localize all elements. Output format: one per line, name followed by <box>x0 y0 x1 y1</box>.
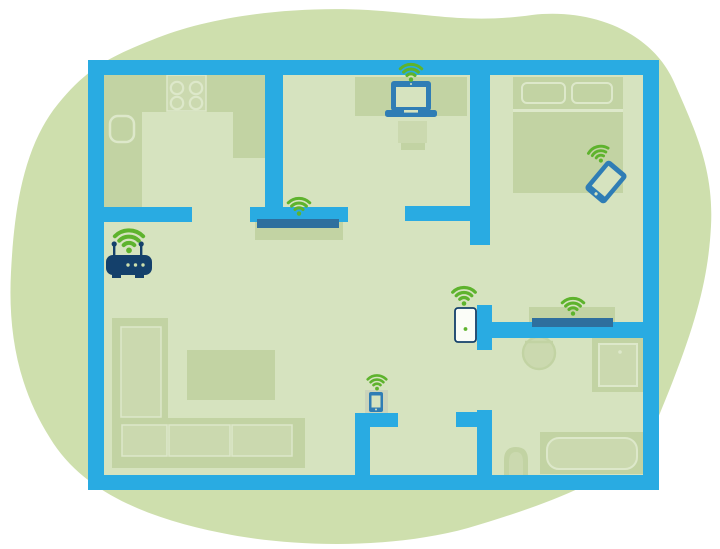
sofa-cushion <box>121 327 161 417</box>
outer-wall-bottom <box>88 475 659 490</box>
wall-office-bedroom <box>470 75 490 245</box>
router-led <box>141 263 144 266</box>
router-antenna-tip <box>112 241 117 246</box>
wall-kitchen-office <box>265 75 283 222</box>
shower-tray <box>599 344 637 386</box>
bathtub-basin <box>547 438 637 469</box>
wall-office-living-right <box>405 206 478 221</box>
smartphone <box>369 392 383 412</box>
floorplan-canvas <box>0 0 720 549</box>
shower-drain <box>618 350 622 354</box>
toilet-seat <box>509 452 523 475</box>
powerline-extender-right <box>532 318 613 327</box>
router-foot <box>112 274 121 278</box>
wall-hallway-stub <box>370 413 398 427</box>
outer-wall-left <box>88 60 104 490</box>
wall-bathroom-door-stub <box>456 412 477 427</box>
repeater-body <box>455 308 476 342</box>
router-led <box>134 263 137 266</box>
laptop-base-notch <box>404 110 418 113</box>
plug-in-wifi-repeater <box>455 308 476 342</box>
sofa-cushion <box>122 425 167 456</box>
outer-wall-right <box>643 60 659 490</box>
laptop-camera-dot <box>410 83 412 85</box>
desk-chair-base <box>401 143 425 150</box>
sofa-cushion <box>232 425 292 456</box>
router-led <box>126 263 129 266</box>
powerline-extender-left <box>257 219 339 228</box>
desk-chair <box>398 121 427 143</box>
laptop-screen <box>396 87 426 107</box>
smartphone-home-dot <box>375 409 377 411</box>
sofa-cushion <box>169 425 230 456</box>
outer-wall-top <box>88 60 659 75</box>
wall-bathroom-left <box>477 410 492 475</box>
floorplan-illustration <box>0 0 720 549</box>
smartphone-screen <box>372 396 381 408</box>
laptop <box>385 81 437 117</box>
repeater-led <box>464 327 468 331</box>
bed-blanket-line <box>513 109 623 112</box>
router-foot <box>135 274 144 278</box>
wall-hallway-left <box>355 413 370 475</box>
kitchen-counter-right <box>233 75 265 158</box>
wall-kitchen-living <box>104 207 192 222</box>
coffee-table <box>187 350 275 400</box>
